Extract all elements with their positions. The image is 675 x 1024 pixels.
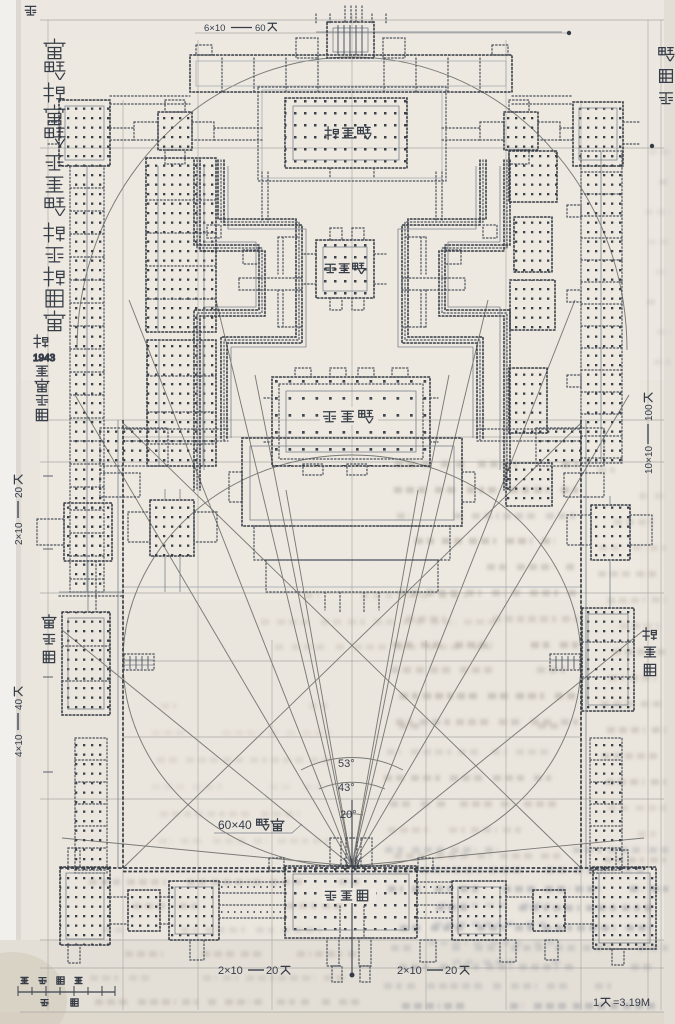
svg-text:60: 60 <box>255 23 266 34</box>
svg-text:20: 20 <box>266 965 278 977</box>
svg-text:40: 40 <box>14 698 25 710</box>
svg-text:53°: 53° <box>338 758 355 770</box>
svg-text:6×10: 6×10 <box>204 23 225 34</box>
svg-text:10×10: 10×10 <box>644 445 655 474</box>
svg-text:1: 1 <box>593 997 599 1009</box>
svg-text:43°: 43° <box>338 782 355 794</box>
svg-text:60×40: 60×40 <box>218 818 252 832</box>
svg-text:20: 20 <box>14 486 25 498</box>
svg-text:4×10: 4×10 <box>14 734 25 757</box>
svg-text:1943: 1943 <box>33 353 56 364</box>
svg-text:2×10: 2×10 <box>397 965 422 977</box>
svg-text:20°: 20° <box>340 809 357 821</box>
svg-text:100: 100 <box>644 404 655 421</box>
svg-text:=3.19M: =3.19M <box>613 997 650 1009</box>
svg-text:20: 20 <box>445 965 457 977</box>
svg-text:2×10: 2×10 <box>14 522 25 545</box>
svg-text:2×10: 2×10 <box>218 965 243 977</box>
